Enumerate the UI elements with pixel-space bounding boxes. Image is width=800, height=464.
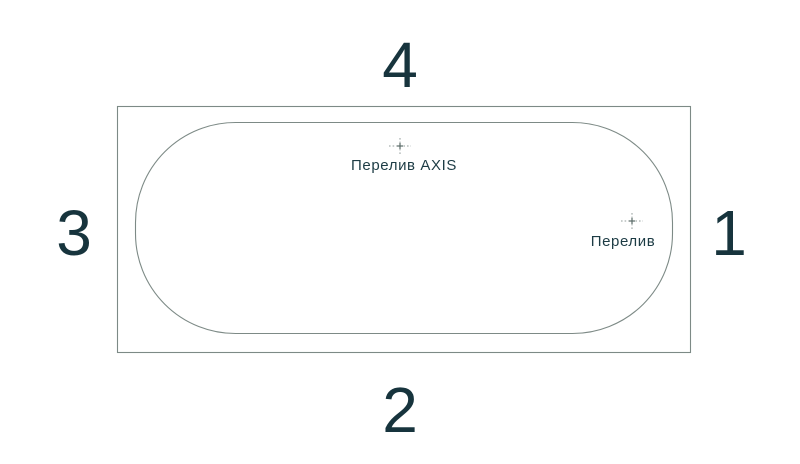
- side-label-top: 4: [382, 29, 418, 101]
- scheme-drawing: Перелив AXIS Перелив 4 2 3 1: [0, 0, 800, 464]
- side-label-right: 1: [711, 197, 747, 269]
- center-mark-overflow-axis-icon: [389, 138, 411, 155]
- overflow-label: Перелив: [591, 233, 656, 250]
- center-mark-overflow-icon: [621, 213, 643, 230]
- overflow-axis-label: Перелив AXIS: [351, 157, 457, 174]
- side-label-left: 3: [56, 197, 92, 269]
- tub-inner-basin: [136, 123, 673, 334]
- bathtub-scheme: Перелив AXIS Перелив 4 2 3 1: [0, 0, 800, 464]
- tub-outer-rim: [118, 107, 691, 353]
- side-label-bottom: 2: [382, 374, 418, 446]
